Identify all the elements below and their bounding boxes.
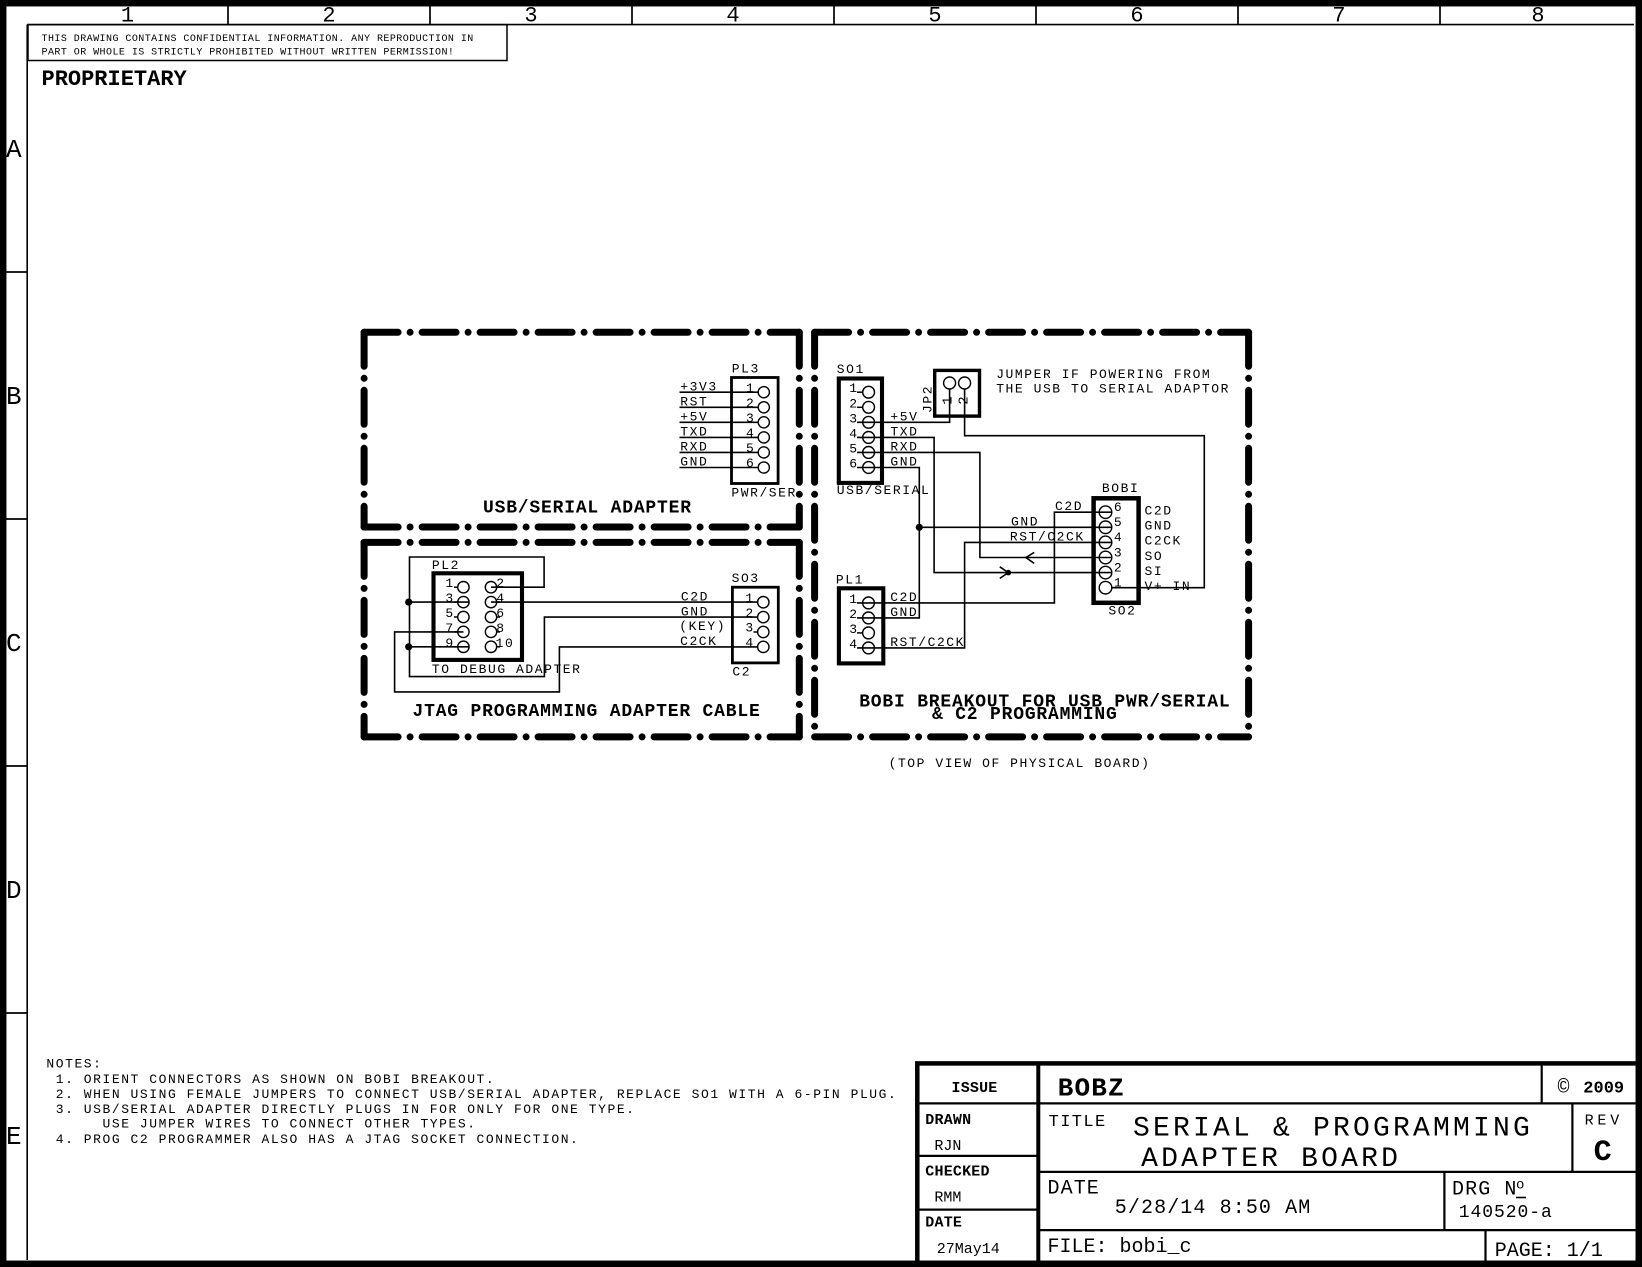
svg-text:B: B [6,382,22,412]
svg-text:PROPRIETARY: PROPRIETARY [42,67,188,92]
svg-text:1: 1 [445,576,454,591]
svg-text:C2D: C2D [890,590,918,605]
svg-text:4: 4 [745,636,754,651]
svg-text:A: A [6,135,22,165]
svg-text:1: 1 [1114,576,1123,591]
svg-text:C2D: C2D [1145,504,1173,519]
svg-text:2: 2 [849,607,858,622]
svg-text:7: 7 [1332,4,1345,29]
svg-text:RJN: RJN [934,1138,961,1155]
svg-text:6: 6 [1130,4,1143,29]
svg-text:NOTES:: NOTES: [46,1056,102,1071]
svg-text:5: 5 [445,606,454,621]
svg-text:o: o [1516,1178,1524,1194]
svg-text:PART OR WHOLE IS STRICTLY PROH: PART OR WHOLE IS STRICTLY PROHIBITED WIT… [42,48,455,59]
svg-text:6: 6 [849,457,858,472]
svg-text:2. WHEN USING FEMALE JUMPERS T: 2. WHEN USING FEMALE JUMPERS TO CONNECT … [46,1087,897,1102]
svg-text:D: D [6,876,22,906]
svg-text:(TOP VIEW OF PHYSICAL BOARD): (TOP VIEW OF PHYSICAL BOARD) [889,756,1151,771]
svg-text:3: 3 [445,591,454,606]
svg-text:DATE: DATE [925,1215,962,1232]
svg-text:2: 2 [849,396,858,411]
svg-text:C: C [6,629,22,659]
svg-text:& C2 PROGRAMMING: & C2 PROGRAMMING [932,705,1118,725]
svg-text:SO: SO [1145,549,1164,564]
svg-text:TXD: TXD [680,425,708,440]
svg-text:GND: GND [681,604,709,619]
svg-text:5: 5 [928,4,941,29]
svg-text:C2D: C2D [681,589,709,604]
svg-text:4: 4 [849,637,858,652]
svg-text:GND: GND [890,605,918,620]
svg-text:RXD: RXD [680,440,708,455]
svg-text:+3V3: +3V3 [680,379,717,394]
svg-text:5/28/14 8:50 AM: 5/28/14 8:50 AM [1115,1197,1312,1220]
svg-text:3: 3 [746,411,755,426]
svg-text:7: 7 [445,621,454,636]
svg-text:(KEY): (KEY) [679,619,726,634]
svg-text:THE USB TO SERIAL ADAPTOR: THE USB TO SERIAL ADAPTOR [996,382,1230,397]
svg-text:PAGE: 1/1: PAGE: 1/1 [1495,1240,1603,1263]
svg-text:C2CK: C2CK [1145,534,1182,549]
svg-text:2: 2 [745,606,754,621]
svg-text:V+ IN: V+ IN [1145,579,1192,594]
svg-text:1: 1 [941,396,957,404]
svg-text:4: 4 [849,426,858,441]
svg-text:6: 6 [746,456,755,471]
svg-text:SI: SI [1145,564,1164,579]
svg-text:GND: GND [1011,515,1039,530]
svg-text:GND: GND [1145,519,1173,534]
svg-text:3: 3 [849,411,858,426]
svg-text:C2D: C2D [1055,499,1083,514]
svg-text:DRAWN: DRAWN [925,1112,971,1129]
svg-text:1: 1 [849,381,858,396]
svg-text:2: 2 [1114,560,1123,575]
svg-text:JUMPER IF POWERING FROM: JUMPER IF POWERING FROM [996,367,1211,382]
svg-text:4: 4 [746,426,755,441]
svg-text:PL3: PL3 [732,362,760,377]
svg-text:PL2: PL2 [432,558,460,573]
svg-text:TITLE: TITLE [1049,1113,1107,1132]
svg-text:1. ORIENT CONNECTORS AS SHOWN: 1. ORIENT CONNECTORS AS SHOWN ON BOBI BR… [46,1072,495,1087]
svg-text:RST/C2CK: RST/C2CK [1010,530,1085,545]
svg-text:SERIAL & PROGRAMMING: SERIAL & PROGRAMMING [1133,1113,1533,1144]
svg-text:SO2: SO2 [1108,603,1136,618]
svg-text:8: 8 [496,621,505,636]
svg-text:5: 5 [746,441,755,456]
svg-text:CHECKED: CHECKED [925,1163,989,1180]
svg-text:140520-a: 140520-a [1459,1203,1553,1223]
svg-text:RST: RST [680,395,708,410]
svg-text:+5V: +5V [680,410,708,425]
svg-text:2: 2 [746,396,755,411]
svg-text:SO3: SO3 [732,571,760,586]
svg-text:4. PROG C2 PROGRAMMER ALSO HAS: 4. PROG C2 PROGRAMMER ALSO HAS A JTAG SO… [46,1132,579,1147]
svg-text:DATE: DATE [1048,1178,1100,1201]
svg-text:E: E [6,1122,22,1152]
svg-text:BOBZ: BOBZ [1058,1073,1125,1103]
svg-text:JTAG PROGRAMMING ADAPTER CABLE: JTAG PROGRAMMING ADAPTER CABLE [413,702,761,722]
svg-text:4: 4 [726,4,739,29]
svg-text:RST/C2CK: RST/C2CK [890,635,965,650]
svg-text:3: 3 [745,621,754,636]
svg-text:REV: REV [1585,1113,1623,1130]
svg-text:SO1: SO1 [837,362,865,377]
svg-text:1: 1 [746,381,755,396]
svg-text:9: 9 [445,636,454,651]
svg-text:3: 3 [849,622,858,637]
svg-text:10: 10 [496,636,515,651]
svg-text:RMM: RMM [934,1190,961,1207]
svg-text:TO DEBUG ADAPTER: TO DEBUG ADAPTER [432,662,582,677]
svg-text:C2: C2 [732,665,751,680]
svg-text:1: 1 [745,591,754,606]
svg-text:5: 5 [849,441,858,456]
svg-text:USB/SERIAL ADAPTER: USB/SERIAL ADAPTER [483,498,692,518]
svg-text:DRG N: DRG N [1452,1179,1518,1202]
svg-text:3: 3 [1114,545,1123,560]
svg-text:C2CK: C2CK [680,634,717,649]
svg-text:4: 4 [496,591,505,606]
svg-text:5: 5 [1114,515,1123,530]
svg-text:ISSUE: ISSUE [952,1080,998,1097]
svg-text:27May14: 27May14 [937,1241,1000,1258]
svg-text:6: 6 [1114,500,1123,515]
svg-text:3. USB/SERIAL ADAPTER DIRECTLY: 3. USB/SERIAL ADAPTER DIRECTLY PLUGS IN … [46,1102,635,1117]
svg-text:GND: GND [680,455,708,470]
svg-text:3: 3 [524,4,537,29]
svg-text:THIS DRAWING CONTAINS CONFIDEN: THIS DRAWING CONTAINS CONFIDENTIAL INFOR… [42,34,474,45]
svg-text:BOBI: BOBI [1102,481,1139,496]
svg-text:USE JUMPER WIRES TO CONNECT OT: USE JUMPER WIRES TO CONNECT OTHER TYPES. [46,1117,476,1132]
svg-text:8: 8 [1531,4,1544,29]
svg-text:PL1: PL1 [836,573,864,588]
svg-text:USB/SERIAL: USB/SERIAL [837,483,931,498]
svg-text:©: © [1558,1077,1570,1100]
svg-text:FILE: bobi_c: FILE: bobi_c [1048,1236,1192,1259]
svg-text:ADAPTER BOARD: ADAPTER BOARD [1141,1144,1401,1175]
svg-text:C: C [1594,1136,1612,1170]
svg-text:2: 2 [496,576,505,591]
svg-text:2009: 2009 [1583,1080,1624,1099]
svg-text:4: 4 [1114,530,1123,545]
svg-text:PWR/SER: PWR/SER [731,485,796,500]
svg-text:1: 1 [849,592,858,607]
svg-text:6: 6 [496,606,505,621]
